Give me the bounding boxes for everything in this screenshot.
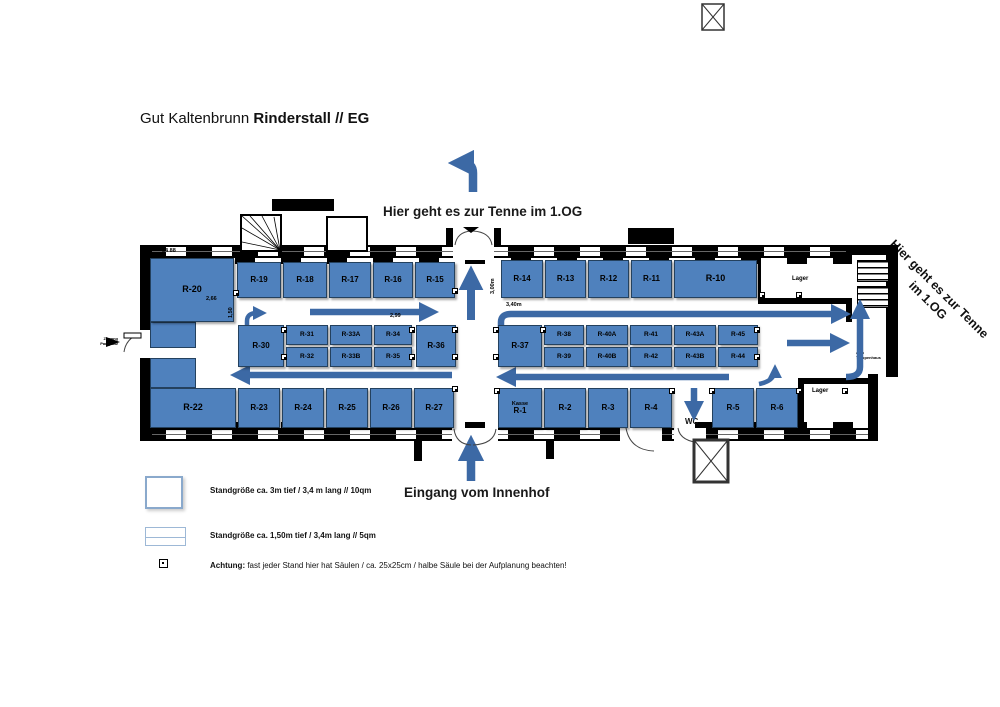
left-door-leaf (124, 333, 141, 338)
column-marker (452, 288, 458, 294)
stand-r-26: R-26 (370, 388, 412, 428)
dimension-label: 3,40m (506, 302, 522, 308)
stand-r-41: R-41 (630, 325, 672, 345)
column-marker (281, 327, 287, 333)
column-marker (754, 354, 760, 360)
door-bottom-center (452, 428, 498, 442)
door-aufzug (674, 428, 706, 442)
column-marker (796, 388, 802, 394)
tower-header (272, 199, 334, 211)
column-marker (409, 327, 415, 333)
stand-r-6: R-6 (756, 388, 798, 428)
label-aufzug: Aufzug (695, 457, 727, 462)
legend-item-3-rest: fast jeder Stand hier hat Säulen / ca. 2… (245, 561, 567, 570)
stand-r-31: R-31 (286, 325, 328, 345)
stand-r-32: R-32 (286, 347, 328, 367)
stand-r-22: R-22 (150, 388, 236, 428)
legend-column-icon (159, 559, 168, 568)
wall-lager-bottom-h (798, 378, 870, 384)
stand-r-1: KasseR-1 (498, 388, 542, 428)
wall-stub-bottom-1 (414, 441, 422, 461)
column-marker (452, 386, 458, 392)
wall-stub-bottom-2 (546, 441, 554, 459)
stairs-right-upper (857, 260, 889, 282)
legend-bigstand-icon (145, 476, 183, 509)
stand-r-11: R-11 (631, 260, 672, 298)
stand-r-18: R-18 (283, 262, 327, 298)
label-zum-treppenhaus: zum Treppenhaus (856, 351, 881, 360)
label-wc: WC (685, 417, 698, 426)
stand-r-24: R-24 (282, 388, 324, 428)
stand-r-27: R-27 (414, 388, 454, 428)
column-marker (409, 354, 415, 360)
stand-r-43b: R-43B (674, 347, 716, 367)
column-marker (281, 354, 287, 360)
legend-item-3: Achtung: fast jeder Stand hier hat Säule… (210, 561, 567, 570)
stand-extension (150, 358, 196, 388)
stand-r-33b: R-33B (330, 347, 372, 367)
column-marker (796, 292, 802, 298)
tower-stairbox (240, 214, 282, 252)
stand-r-40a: R-40A (586, 325, 628, 345)
stand-r-3: R-3 (588, 388, 628, 428)
legend-item-3-bold: Achtung: (210, 561, 245, 570)
door-top-center (453, 243, 494, 260)
label-lager-top: Lager (792, 276, 808, 282)
dimension-label: 3,00m (490, 278, 496, 294)
stand-r-10: R-10 (674, 260, 757, 298)
dimension-label: 2,99 (390, 313, 401, 319)
legend-item-2: Standgröße ca. 1,50m tief / 3,4m lang //… (210, 531, 376, 540)
label-zugang-parkplatz: Zugang Parkplatz (92, 337, 118, 346)
arrow-to-tenne-top (457, 163, 473, 192)
stand-r-42: R-42 (630, 347, 672, 367)
stairs-right-lower (857, 286, 889, 308)
shaft-icon-top (702, 4, 724, 30)
stand-r-45: R-45 (718, 325, 758, 345)
column-marker (754, 327, 760, 333)
stand-r-37: R-37 (498, 325, 542, 367)
stand-r-39: R-39 (544, 347, 584, 367)
door-top-marker (463, 227, 479, 233)
stand-r-36: R-36 (416, 325, 456, 367)
stand-r-5: R-5 (712, 388, 754, 428)
stand-r-30: R-30 (238, 325, 284, 367)
label-lager-bottom: Lager (812, 388, 828, 394)
chimney-block (628, 228, 674, 244)
stand-r-25: R-25 (326, 388, 368, 428)
stand-r-17: R-17 (329, 262, 371, 298)
column-marker (842, 388, 848, 394)
column-marker (233, 290, 239, 296)
stand-r-20: R-20 (150, 258, 234, 322)
legend-item-1: Standgröße ca. 3m tief / 3,4 m lang // 1… (210, 486, 371, 495)
wall-lager-top-stub (846, 304, 852, 322)
arrow-hook (759, 369, 775, 384)
door-wc (620, 428, 662, 442)
column-marker (493, 354, 499, 360)
wall-bottom (140, 428, 872, 441)
stand-r-12: R-12 (588, 260, 629, 298)
stand-r-13: R-13 (545, 260, 586, 298)
column-marker (540, 327, 546, 333)
stand-extension (150, 322, 196, 348)
column-marker (759, 292, 765, 298)
column-marker (452, 354, 458, 360)
stand-r-40b: R-40B (586, 347, 628, 367)
stand-r-44: R-44 (718, 347, 758, 367)
stand-r-4: R-4 (630, 388, 672, 428)
wall-bottomright-v (868, 374, 878, 441)
dimension-label: 84 88 (162, 248, 176, 254)
stand-r-14: R-14 (501, 260, 543, 298)
column-marker (669, 388, 675, 394)
stand-r-15: R-15 (415, 262, 455, 298)
stand-r-2: R-2 (544, 388, 586, 428)
column-marker (494, 388, 500, 394)
stand-r-33a: R-33A (330, 325, 372, 345)
wall-lager-top-h (758, 298, 852, 304)
column-marker (452, 327, 458, 333)
tower-box (326, 216, 368, 252)
dimension-label: 1,50 (228, 307, 234, 318)
stand-r-35: R-35 (374, 347, 412, 367)
dimension-label: 2,66 (206, 296, 217, 302)
stand-r-43a: R-43A (674, 325, 716, 345)
wall-stub-topdoor-left (446, 228, 453, 246)
floor-plan: Lager Lager WC Aufzug zum Treppenhaus Zu… (0, 0, 1000, 707)
wall-stub-topdoor-right (494, 228, 501, 246)
stand-r-23: R-23 (238, 388, 280, 428)
stand-r-19: R-19 (237, 262, 281, 298)
legend-smallstand-icon (145, 527, 186, 546)
floor-plan-page: Gut Kaltenbrunn Rinderstall // EG Hier g… (0, 0, 1000, 707)
column-marker (709, 388, 715, 394)
stand-r-34: R-34 (374, 325, 412, 345)
stand-r-16: R-16 (373, 262, 413, 298)
stand-r-38: R-38 (544, 325, 584, 345)
column-marker (493, 327, 499, 333)
dimension-label: 88 81 (380, 429, 394, 435)
doorarc-left-entrance (124, 334, 140, 352)
